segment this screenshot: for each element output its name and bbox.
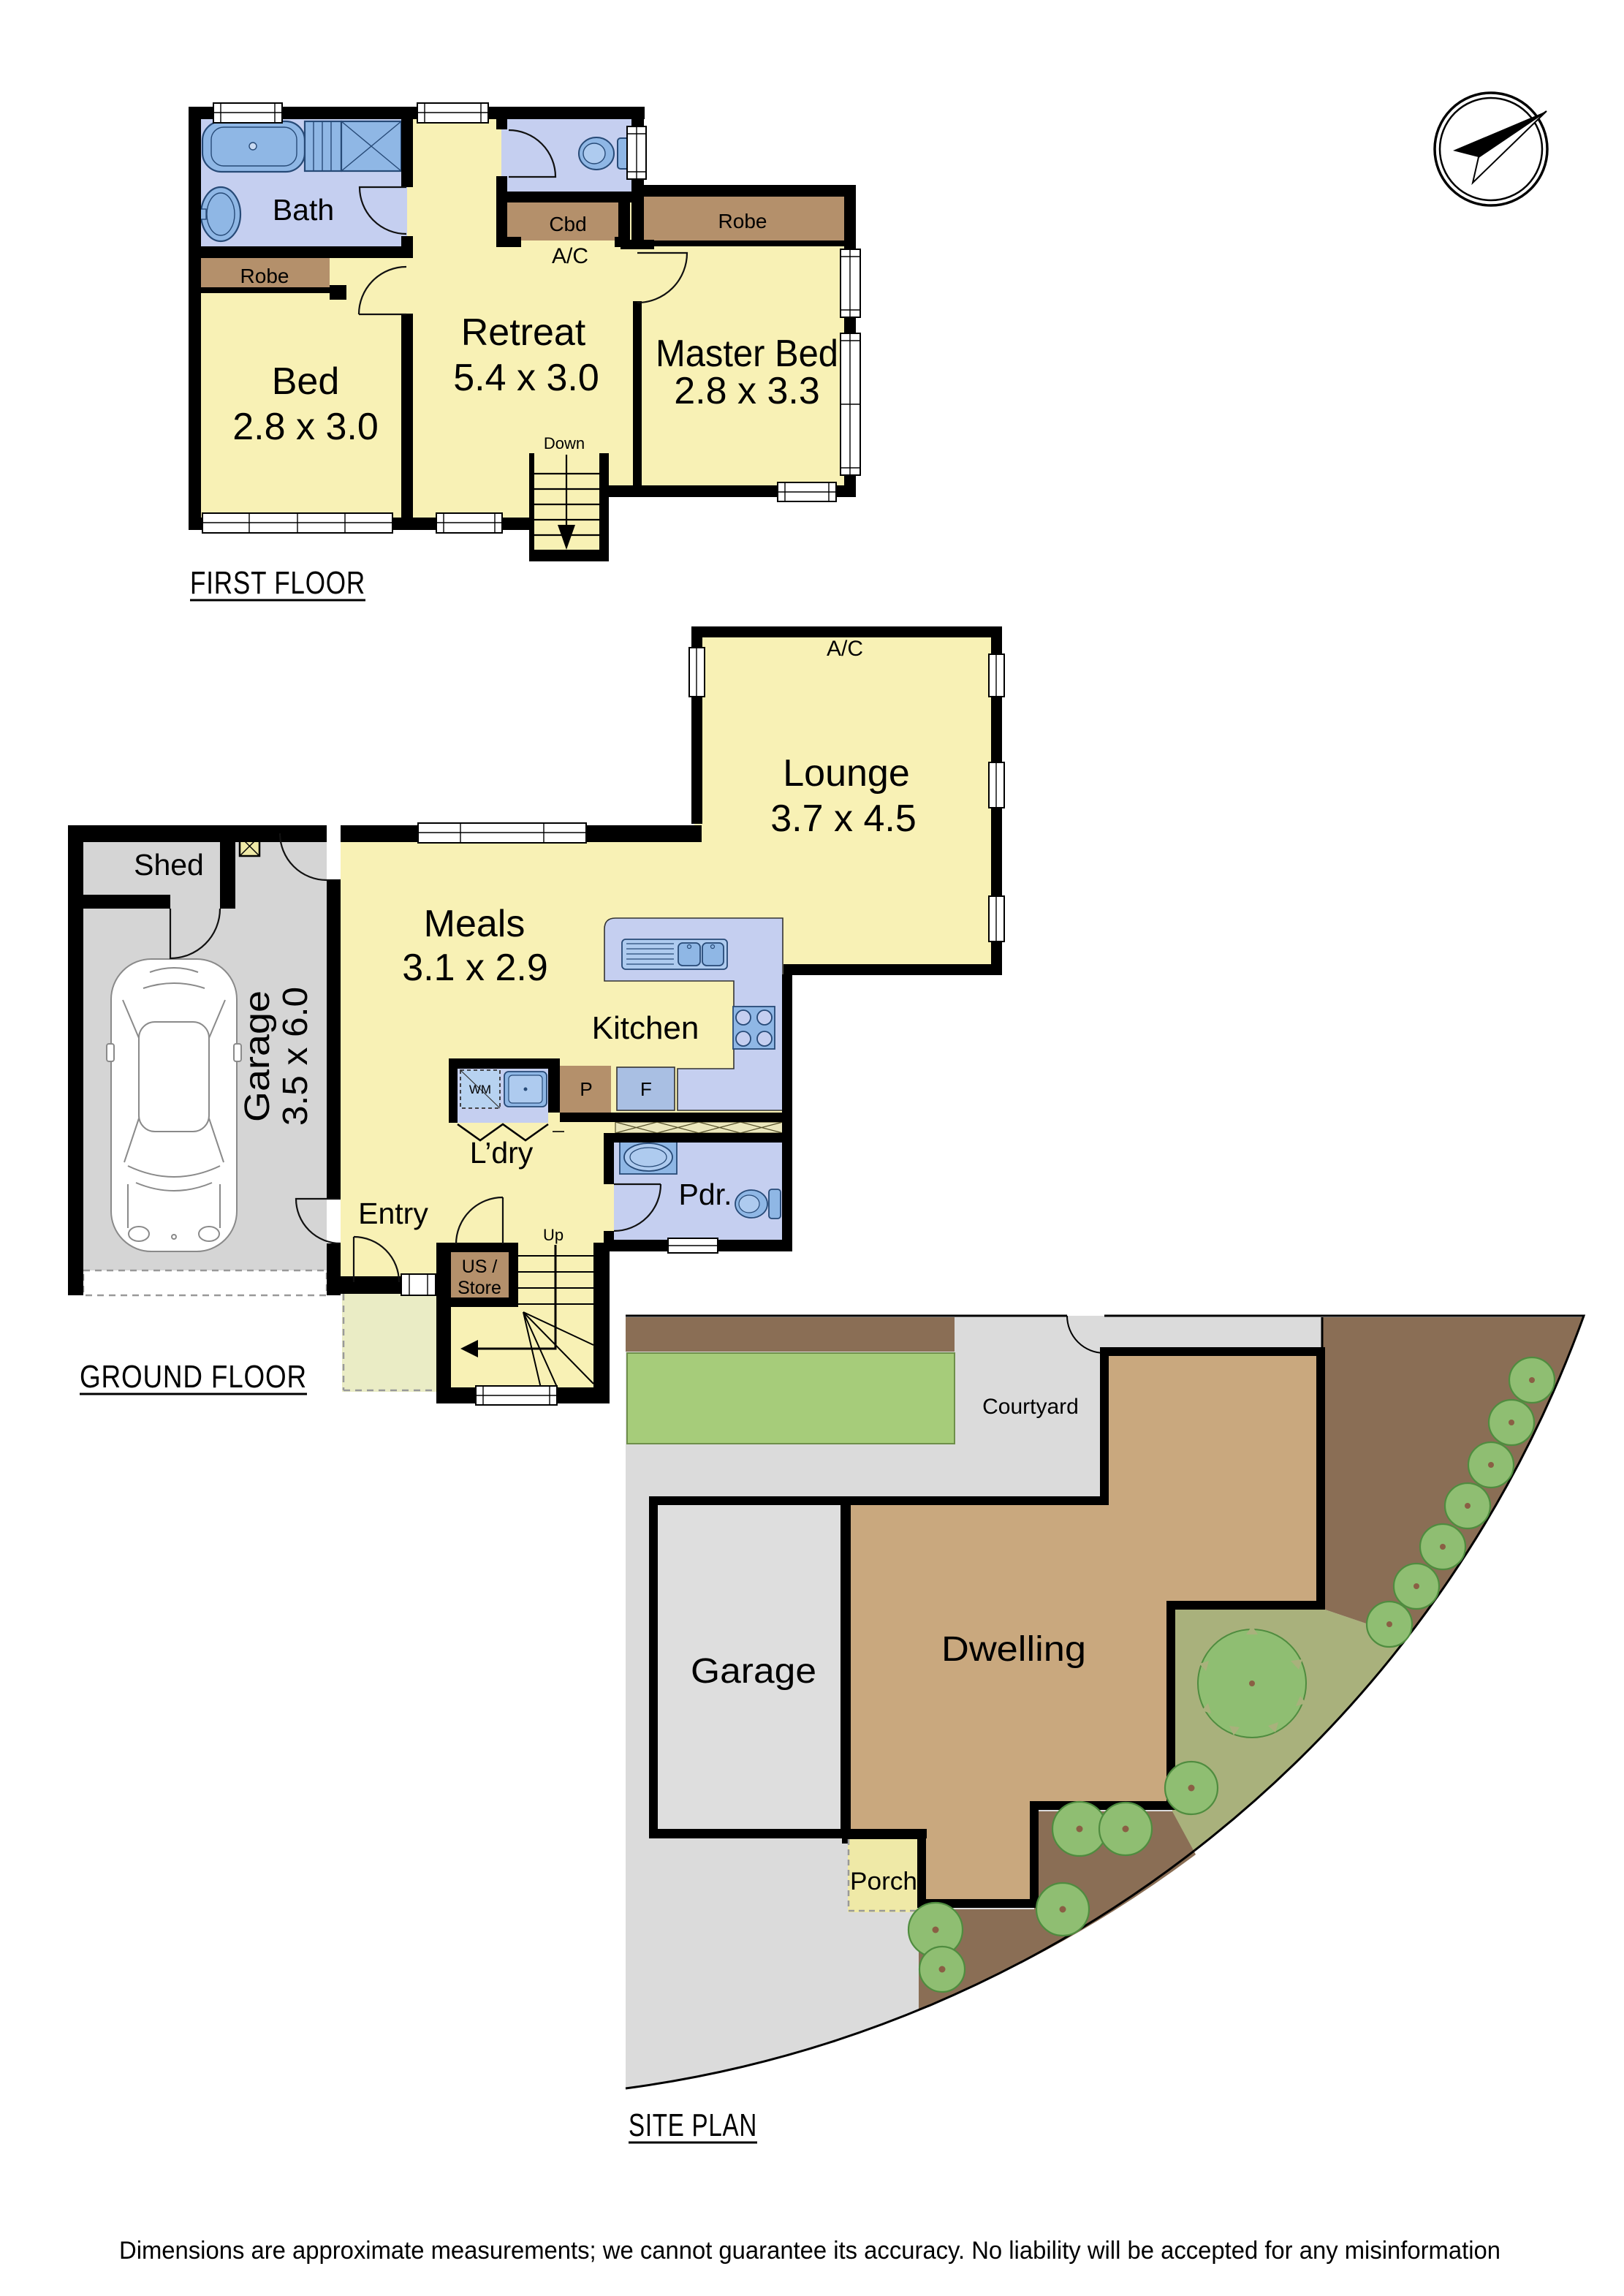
svg-text:3.7 x 4.5: 3.7 x 4.5 (770, 797, 916, 840)
svg-text:2.8 x 3.3: 2.8 x 3.3 (674, 370, 819, 412)
svg-text:L’dry: L’dry (470, 1136, 534, 1170)
svg-text:Bed: Bed (272, 360, 340, 403)
svg-text:GROUND FLOOR: GROUND FLOOR (80, 1359, 307, 1395)
svg-text:Dimensions are approximate mea: Dimensions are approximate measurements;… (119, 2237, 1500, 2265)
svg-text:Lounge: Lounge (783, 752, 910, 795)
svg-text:Store: Store (458, 1278, 501, 1298)
svg-text:Garage: Garage (691, 1652, 816, 1691)
svg-text:SITE PLAN: SITE PLAN (629, 2107, 757, 2143)
svg-text:3.1 x 2.9: 3.1 x 2.9 (402, 947, 547, 989)
svg-text:Entry: Entry (358, 1197, 428, 1230)
svg-text:2.8 x 3.0: 2.8 x 3.0 (232, 406, 378, 448)
svg-text:A/C: A/C (552, 244, 588, 268)
svg-text:Bath: Bath (273, 193, 334, 227)
svg-text:F: F (640, 1078, 652, 1100)
svg-text:Porch: Porch (850, 1868, 917, 1895)
svg-text:Pdr.: Pdr. (679, 1178, 732, 1211)
svg-text:Robe: Robe (718, 210, 767, 232)
svg-text:Down: Down (544, 434, 585, 452)
svg-text:P: P (580, 1078, 592, 1100)
svg-text:Dwelling: Dwelling (941, 1630, 1086, 1669)
svg-text:Master Bed: Master Bed (656, 333, 838, 375)
svg-text:Courtyard: Courtyard (982, 1395, 1079, 1419)
svg-text:Meals: Meals (424, 903, 525, 945)
svg-text:FIRST FLOOR: FIRST FLOOR (190, 565, 365, 601)
svg-text:WM: WM (469, 1083, 491, 1096)
svg-text:Kitchen: Kitchen (592, 1010, 699, 1046)
svg-text:3.5 x 6.0: 3.5 x 6.0 (276, 987, 315, 1126)
svg-text:Up: Up (543, 1226, 564, 1244)
svg-text:Cbd: Cbd (549, 213, 586, 235)
svg-text:Garage: Garage (238, 990, 277, 1122)
svg-text:Retreat: Retreat (461, 311, 586, 354)
svg-text:5.4 x 3.0: 5.4 x 3.0 (453, 357, 599, 399)
svg-text:Shed: Shed (134, 848, 204, 882)
svg-text:Robe: Robe (240, 265, 289, 287)
svg-text:A/C: A/C (827, 637, 863, 661)
svg-text:US /: US / (462, 1257, 498, 1277)
